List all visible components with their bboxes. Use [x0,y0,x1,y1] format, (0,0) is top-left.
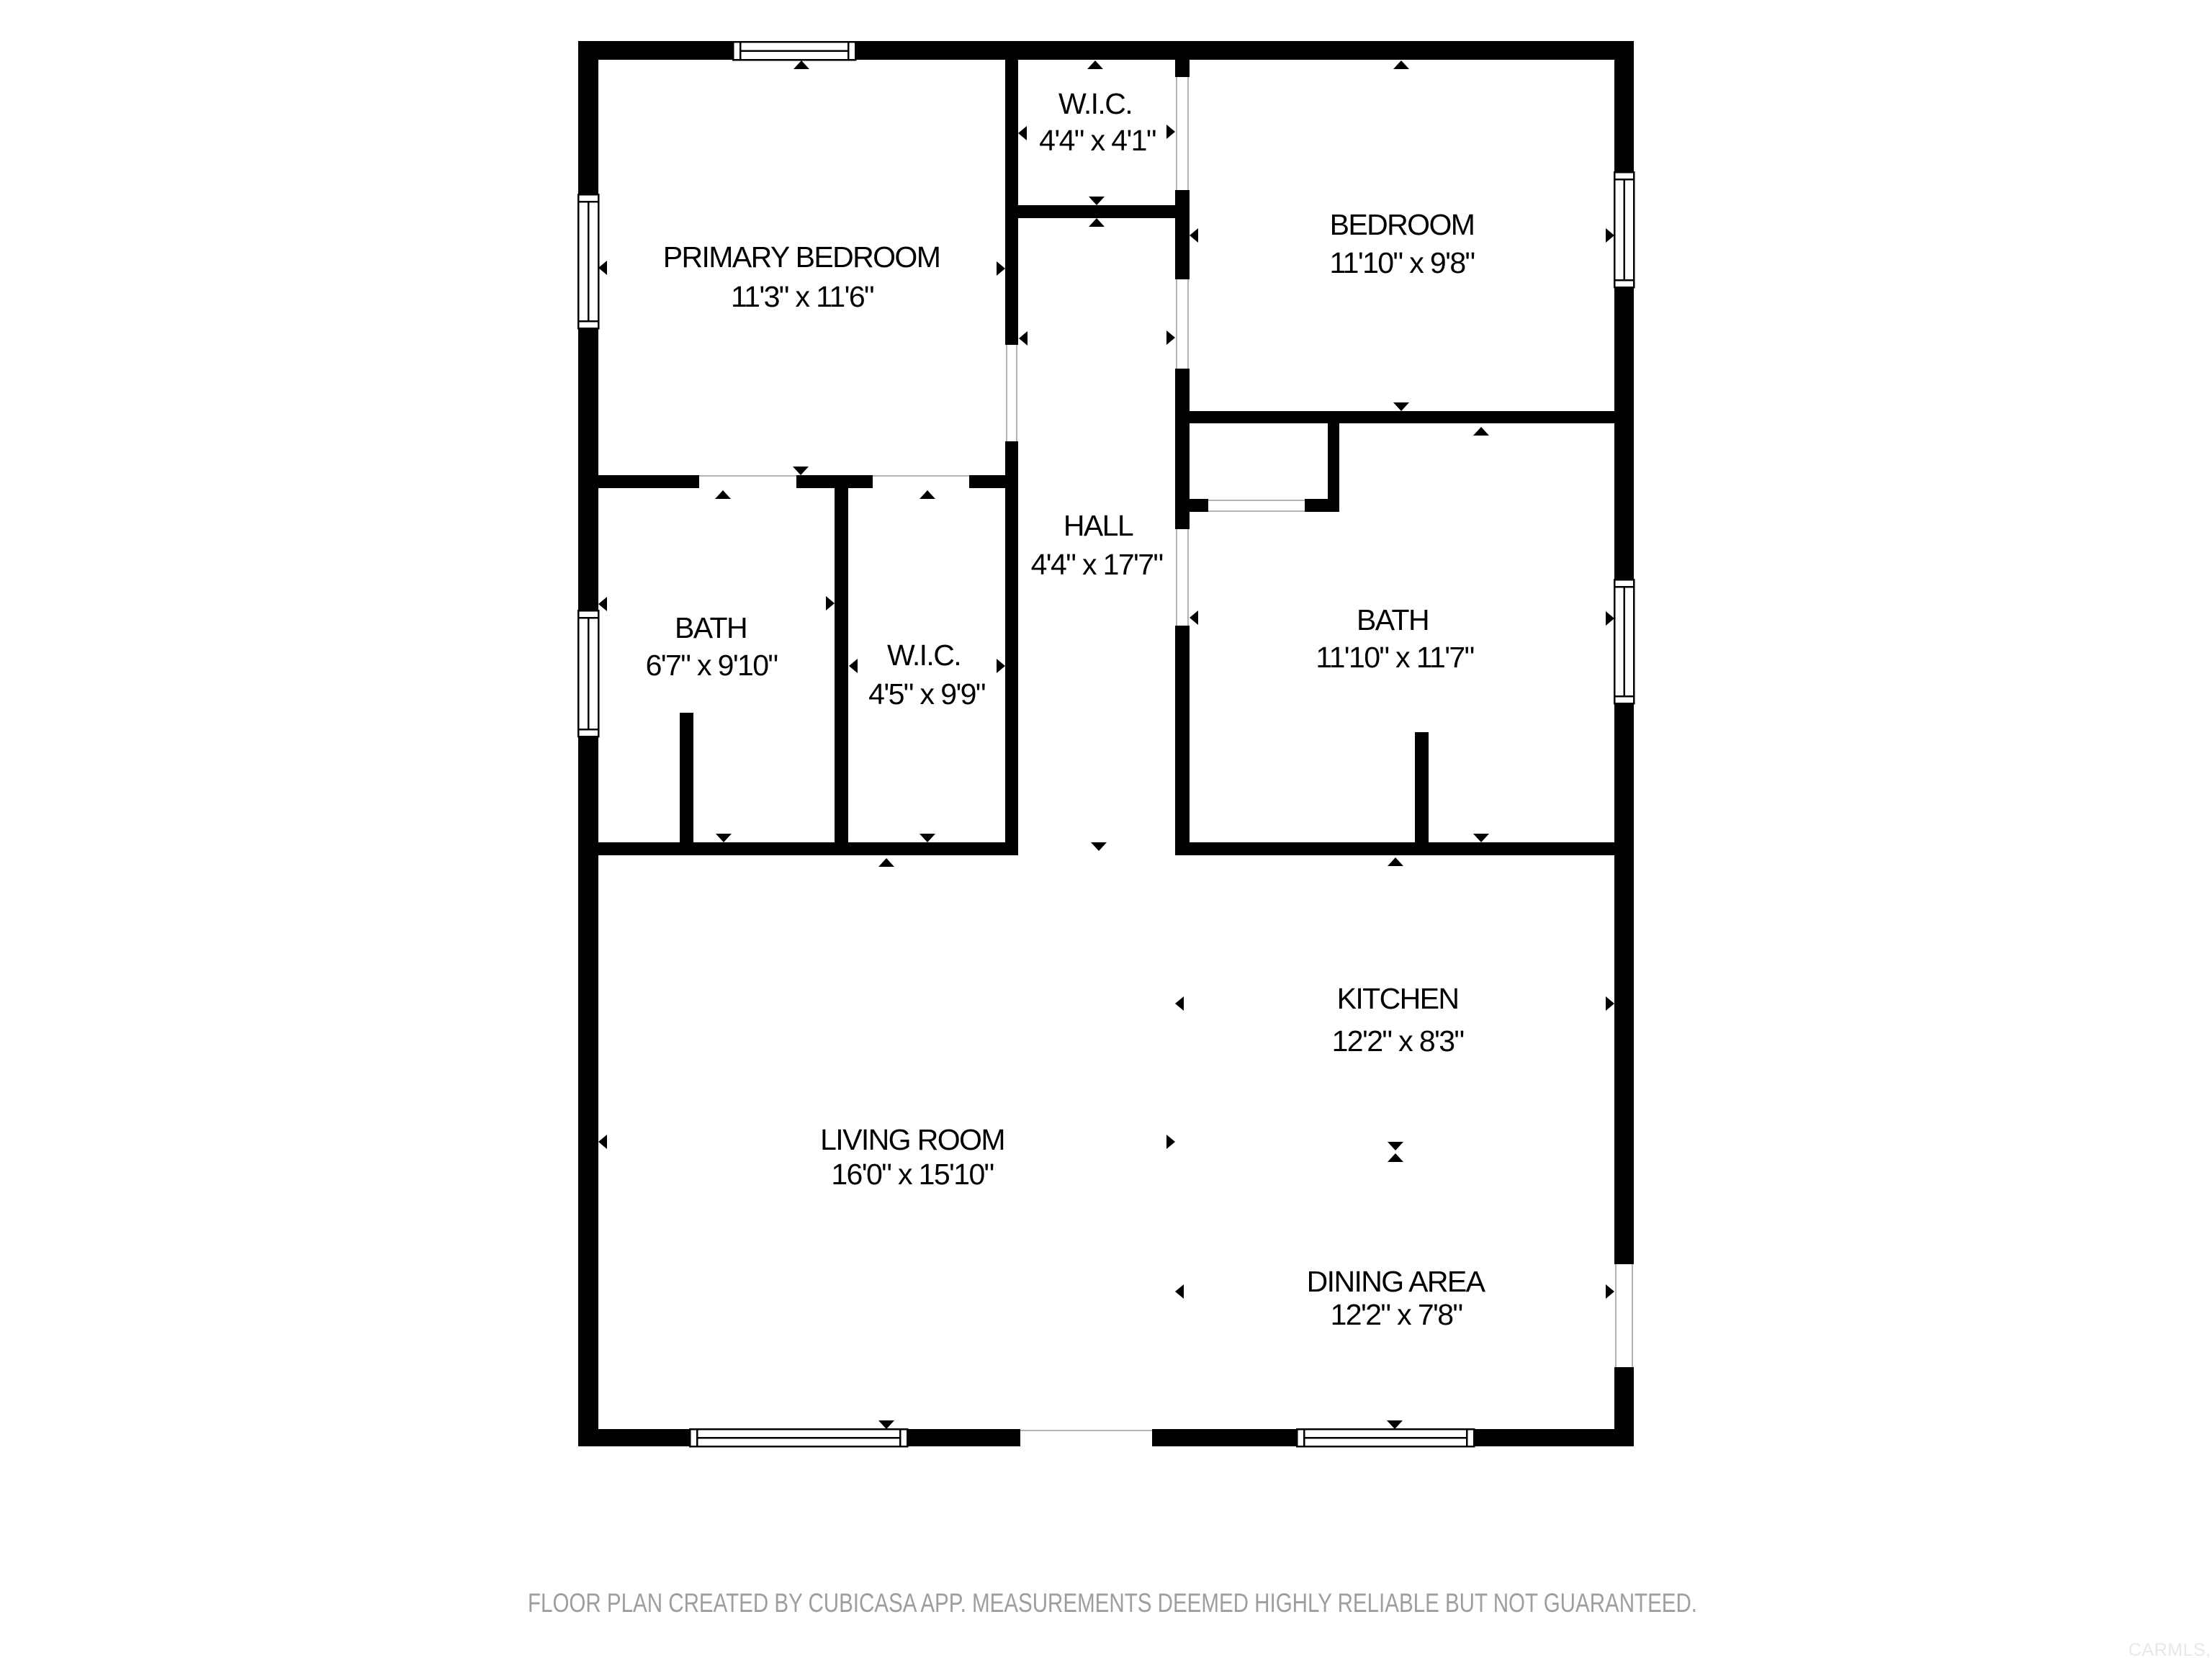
svg-text:BATH: BATH [675,611,747,644]
svg-text:11'3" x 11'6": 11'3" x 11'6" [731,280,873,313]
svg-text:4'4" x 17'7": 4'4" x 17'7" [1031,548,1163,581]
svg-text:12'2" x 7'8": 12'2" x 7'8" [1331,1298,1462,1331]
svg-text:CARMLS, TC: CARMLS, TC [2128,1640,2212,1658]
svg-text:11'10" x 9'8": 11'10" x 9'8" [1329,246,1474,279]
svg-text:W.I.C.: W.I.C. [887,639,961,672]
svg-text:PRIMARY BEDROOM: PRIMARY BEDROOM [663,240,940,274]
svg-text:12'2" x 8'3": 12'2" x 8'3" [1332,1024,1464,1058]
svg-text:4'5" x 9'9": 4'5" x 9'9" [868,677,985,711]
svg-text:6'7" x 9'10": 6'7" x 9'10" [646,649,778,682]
svg-text:LIVING ROOM: LIVING ROOM [820,1123,1004,1156]
svg-text:FLOOR PLAN CREATED BY CUBICASA: FLOOR PLAN CREATED BY CUBICASA APP. MEAS… [528,1588,1697,1618]
svg-text:BATH: BATH [1357,603,1429,636]
svg-text:DINING AREA: DINING AREA [1307,1265,1486,1298]
svg-text:HALL: HALL [1064,509,1133,542]
svg-text:W.I.C.: W.I.C. [1058,87,1132,120]
svg-text:4'4" x 4'1": 4'4" x 4'1" [1039,124,1156,157]
svg-text:16'0" x 15'10": 16'0" x 15'10" [831,1158,993,1191]
svg-text:11'10" x 11'7": 11'10" x 11'7" [1316,641,1473,674]
svg-text:KITCHEN: KITCHEN [1337,982,1459,1015]
svg-text:BEDROOM: BEDROOM [1330,208,1475,241]
